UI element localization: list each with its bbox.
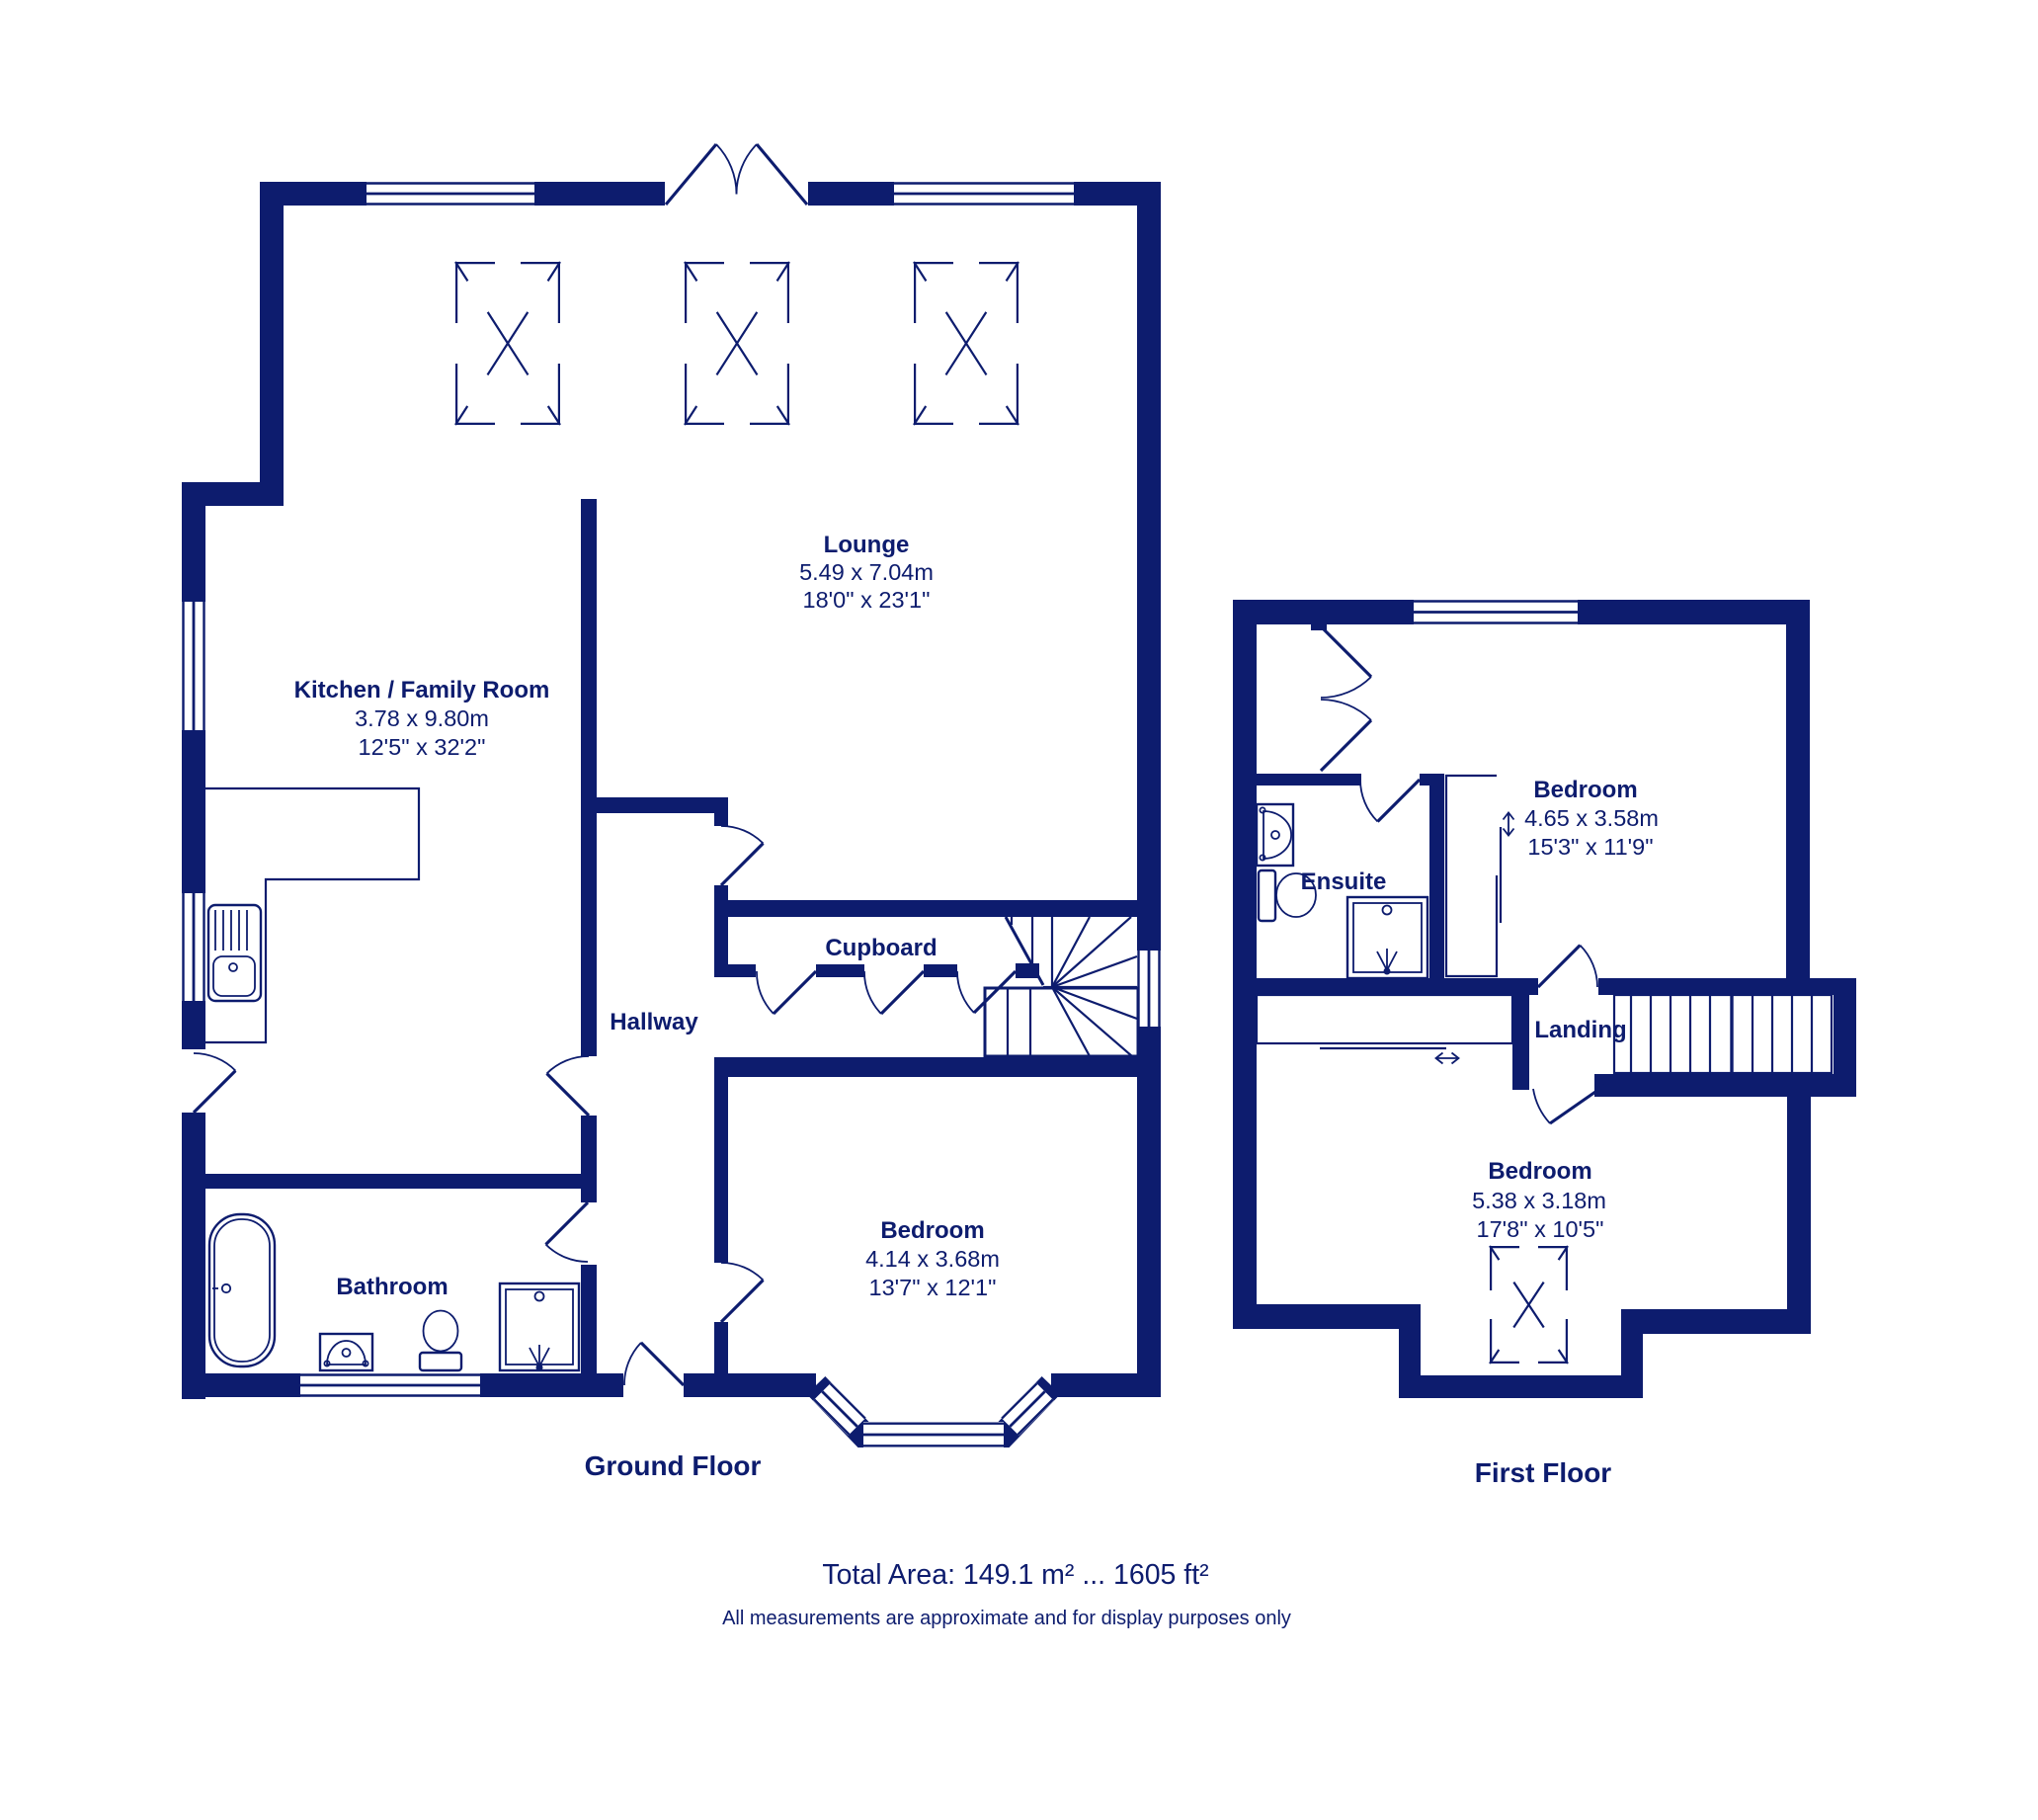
svg-text:12'5" x 32'2": 12'5" x 32'2" xyxy=(359,734,486,760)
svg-text:13'7" x 12'1": 13'7" x 12'1" xyxy=(869,1275,997,1300)
svg-text:5.38 x 3.18m: 5.38 x 3.18m xyxy=(1472,1188,1606,1213)
svg-text:Total Area: 149.1 m² ... 1605: Total Area: 149.1 m² ... 1605 ft² xyxy=(822,1559,1208,1591)
svg-text:All measurements are approxima: All measurements are approximate and for… xyxy=(722,1608,1291,1629)
svg-text:Landing: Landing xyxy=(1534,1017,1626,1043)
svg-text:First Floor: First Floor xyxy=(1475,1457,1612,1488)
svg-text:4.65 x 3.58m: 4.65 x 3.58m xyxy=(1524,805,1659,831)
svg-text:Bedroom: Bedroom xyxy=(1488,1158,1591,1185)
svg-text:Hallway: Hallway xyxy=(610,1009,698,1035)
svg-text:Ensuite: Ensuite xyxy=(1301,869,1387,895)
svg-text:17'8" x 10'5": 17'8" x 10'5" xyxy=(1477,1216,1604,1242)
svg-text:Kitchen / Family Room: Kitchen / Family Room xyxy=(294,677,550,703)
svg-text:18'0" x 23'1": 18'0" x 23'1" xyxy=(803,587,931,613)
svg-text:15'3" x 11'9": 15'3" x 11'9" xyxy=(1527,834,1653,860)
svg-text:Ground Floor: Ground Floor xyxy=(585,1450,762,1481)
svg-text:Bedroom: Bedroom xyxy=(880,1217,984,1244)
svg-text:Cupboard: Cupboard xyxy=(825,935,937,961)
svg-text:Bedroom: Bedroom xyxy=(1533,777,1637,803)
svg-text:4.14 x 3.68m: 4.14 x 3.68m xyxy=(865,1246,1000,1272)
svg-text:Bathroom: Bathroom xyxy=(336,1274,448,1300)
svg-text:5.49 x 7.04m: 5.49 x 7.04m xyxy=(799,559,934,585)
svg-text:Lounge: Lounge xyxy=(824,532,910,558)
svg-text:3.78 x 9.80m: 3.78 x 9.80m xyxy=(355,705,489,731)
